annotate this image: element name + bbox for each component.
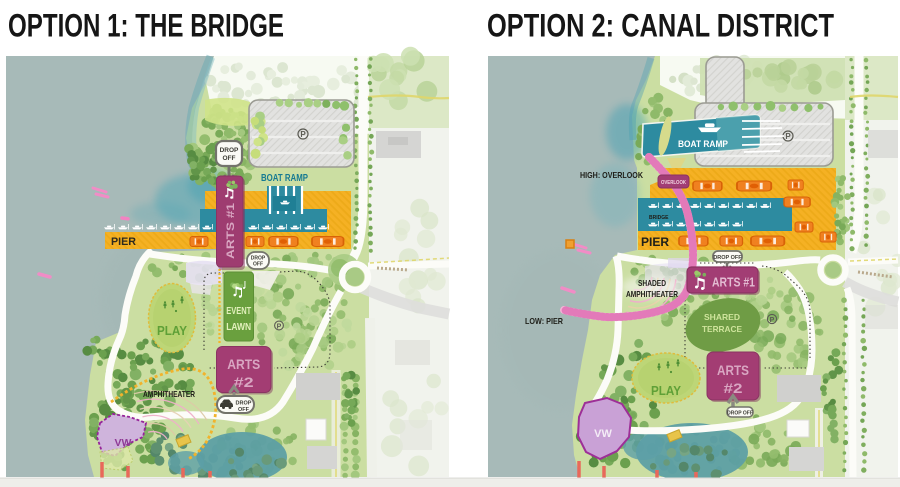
svg-text:P: P bbox=[300, 130, 306, 139]
svg-text:OFF: OFF bbox=[253, 262, 263, 268]
svg-text:AMPHITHEATER: AMPHITHEATER bbox=[143, 389, 195, 399]
svg-text:DROP: DROP bbox=[236, 401, 252, 407]
svg-text:PLAY: PLAY bbox=[651, 384, 682, 398]
svg-text:#2: #2 bbox=[234, 374, 254, 390]
svg-text:TERRACE: TERRACE bbox=[702, 324, 742, 334]
svg-text:OFF: OFF bbox=[223, 155, 236, 162]
svg-text:HIGH: OVERLOOK: HIGH: OVERLOOK bbox=[580, 170, 644, 180]
svg-text:VW: VW bbox=[115, 437, 132, 449]
svg-text:P: P bbox=[785, 132, 791, 141]
svg-text:DROP: DROP bbox=[220, 147, 239, 154]
svg-text:OPTION 2: CANAL DISTRICT: OPTION 2: CANAL DISTRICT bbox=[487, 8, 834, 44]
svg-text:BOAT RAMP: BOAT RAMP bbox=[261, 173, 308, 184]
svg-text:ARTS #1: ARTS #1 bbox=[712, 275, 755, 290]
svg-text:OVERLOOK: OVERLOOK bbox=[661, 180, 686, 186]
svg-text:PIER: PIER bbox=[641, 237, 670, 249]
svg-text:BRIDGE: BRIDGE bbox=[649, 215, 669, 221]
svg-text:ARTS: ARTS bbox=[227, 356, 260, 372]
svg-text:VW: VW bbox=[594, 428, 612, 440]
svg-text:BOAT RAMP: BOAT RAMP bbox=[678, 139, 728, 149]
svg-text:EVENT: EVENT bbox=[226, 306, 251, 317]
svg-text:PIER: PIER bbox=[111, 236, 136, 248]
svg-text:DROP OFF: DROP OFF bbox=[713, 255, 742, 261]
svg-text:P: P bbox=[277, 323, 282, 330]
svg-text:ARTS: ARTS bbox=[717, 362, 749, 378]
svg-text:DROP OFF: DROP OFF bbox=[727, 411, 753, 417]
svg-text:LOW: PIER: LOW: PIER bbox=[525, 316, 563, 326]
svg-text:PLAY: PLAY bbox=[157, 324, 188, 338]
svg-text:P: P bbox=[770, 317, 775, 324]
svg-text:ARTS #1: ARTS #1 bbox=[225, 203, 237, 259]
svg-text:SHARED: SHARED bbox=[704, 312, 740, 322]
svg-text:OPTION 1: THE BRIDGE: OPTION 1: THE BRIDGE bbox=[8, 8, 284, 44]
svg-text:LAWN: LAWN bbox=[226, 322, 251, 333]
svg-text:SHADED: SHADED bbox=[638, 278, 666, 288]
svg-text:OFF: OFF bbox=[238, 407, 250, 413]
svg-text:AMPHITHEATER: AMPHITHEATER bbox=[626, 289, 678, 299]
